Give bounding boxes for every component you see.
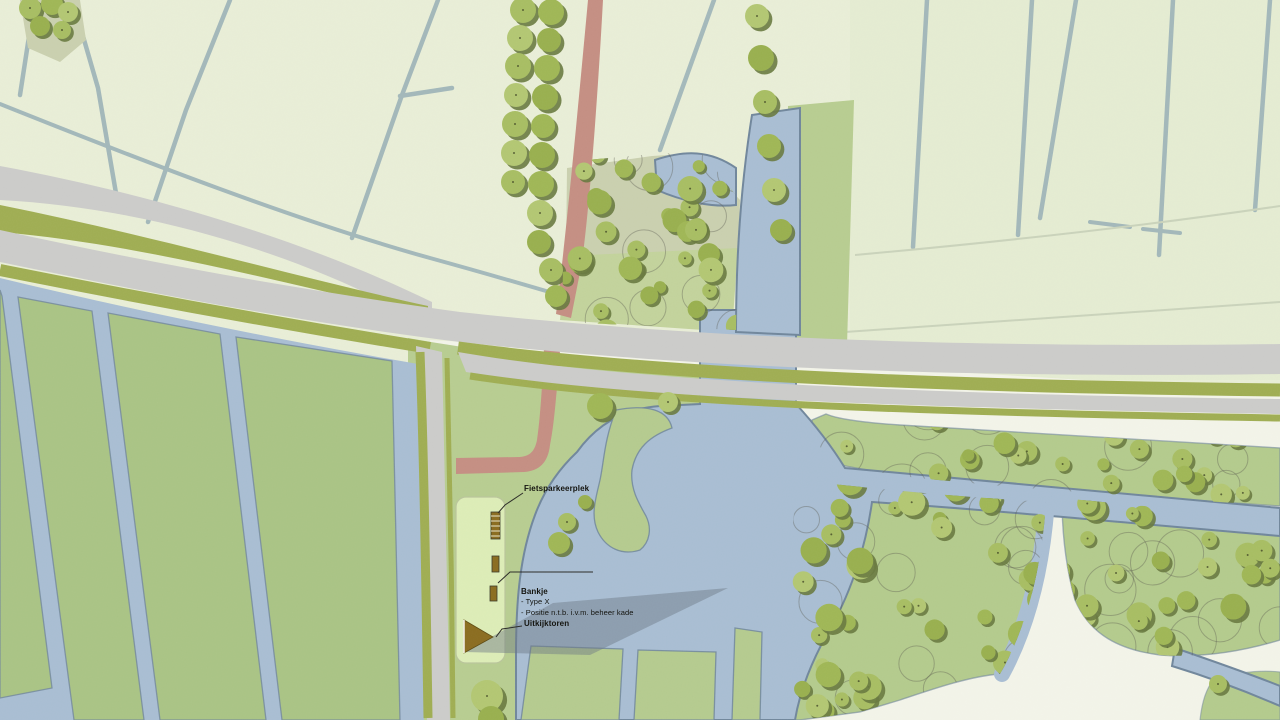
annotation-label: Uitkijktoren (524, 619, 569, 628)
site-plan-map: Fietsparkeerplek Bankje - Type X - Posit… (0, 0, 1280, 720)
annotation-detail: - Positie n.t.b. i.v.m. beheer kade (521, 608, 634, 618)
annotation-fietsparkeerplek: Fietsparkeerplek (524, 484, 589, 494)
annotation-label: Fietsparkeerplek (524, 484, 589, 493)
paper-texture (0, 0, 1280, 720)
annotation-detail: - Type X (521, 597, 634, 607)
annotation-uitkijktoren: Uitkijktoren (524, 619, 569, 629)
map-canvas (0, 0, 1280, 720)
annotation-label: Bankje (521, 587, 548, 596)
annotation-bankje: Bankje - Type X - Positie n.t.b. i.v.m. … (521, 587, 634, 618)
